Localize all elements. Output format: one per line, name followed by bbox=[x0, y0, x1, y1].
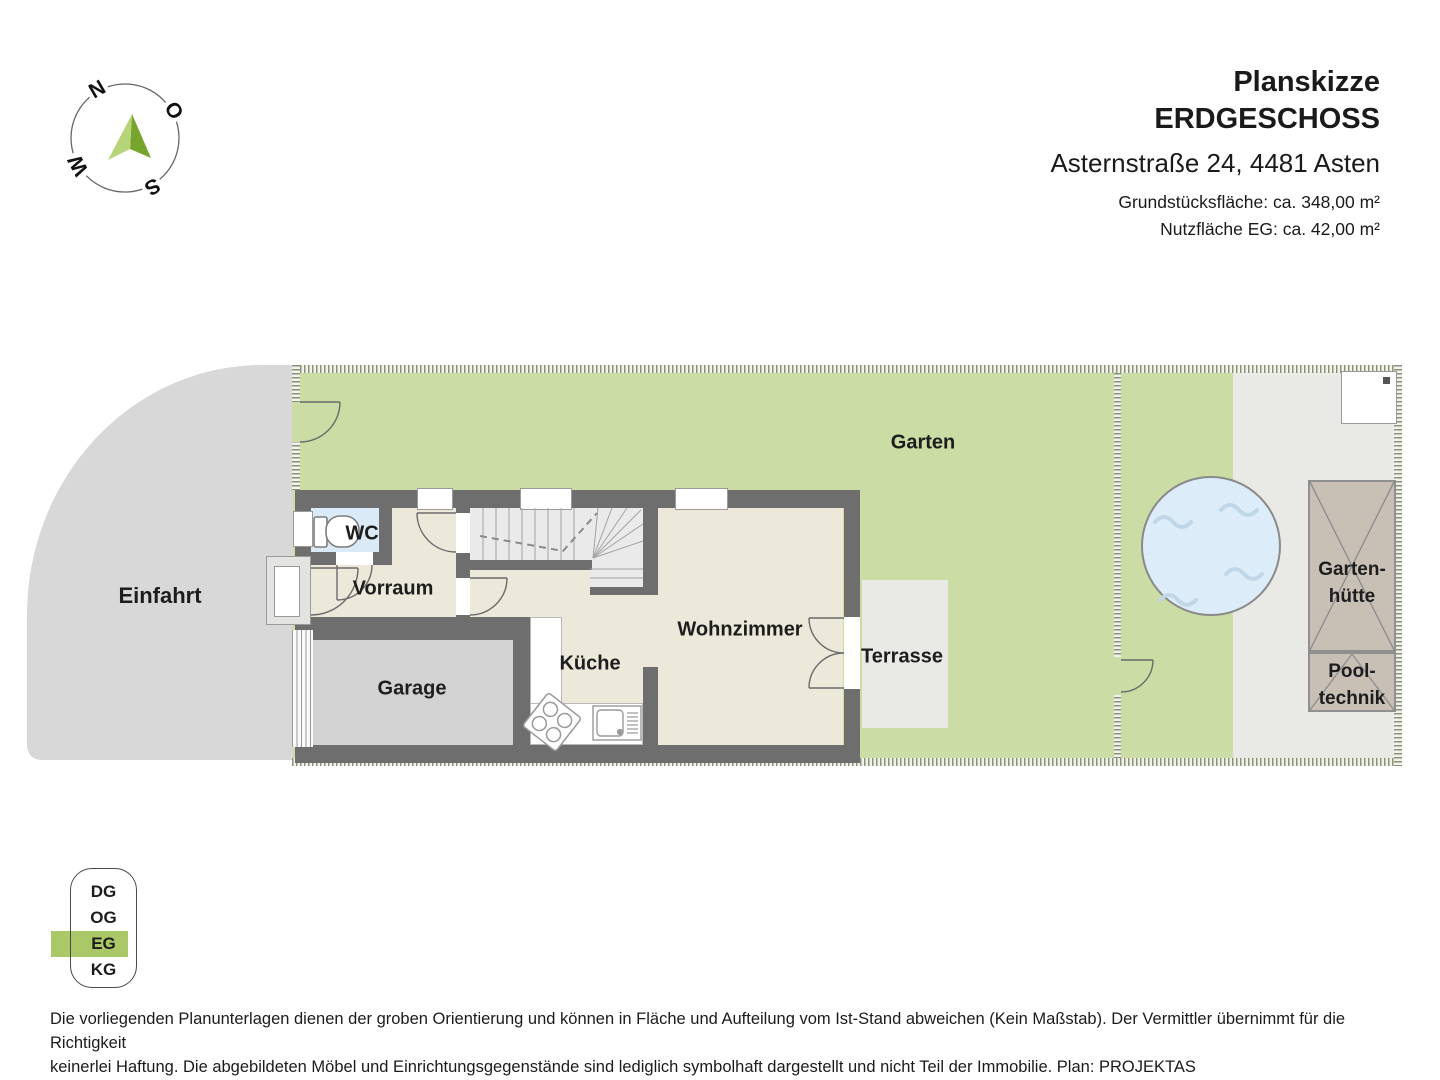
floor-item-og[interactable]: OG bbox=[70, 905, 137, 931]
floor-item-eg[interactable]: EG bbox=[70, 931, 137, 957]
wall bbox=[513, 640, 530, 745]
kitchen-counter-bottom bbox=[530, 703, 643, 745]
wall bbox=[295, 490, 860, 508]
compass: N O S W bbox=[58, 70, 198, 210]
wall bbox=[295, 745, 860, 763]
address: Asternstraße 24, 4481 Asten bbox=[1050, 147, 1380, 179]
floorplan-page: Planskizze ERDGESCHOSS Asternstraße 24, … bbox=[0, 0, 1440, 1080]
wall bbox=[590, 587, 658, 595]
compass-arrow-light bbox=[108, 114, 132, 160]
label-vorraum: Vorraum bbox=[353, 578, 434, 601]
label-wohnzimmer: Wohnzimmer bbox=[677, 619, 802, 642]
label-gartenhuette: Garten- hütte bbox=[1318, 556, 1386, 610]
floor-title: ERDGESCHOSS bbox=[1050, 101, 1380, 138]
wc-window bbox=[293, 511, 313, 547]
garden-gate-gap bbox=[292, 402, 301, 442]
label-terrasse: Terrasse bbox=[861, 646, 943, 669]
wall bbox=[470, 560, 592, 570]
driveway-area bbox=[27, 365, 293, 760]
disclaimer-line1: Die vorliegenden Planunterlagen dienen d… bbox=[50, 1007, 1400, 1055]
compass-circle bbox=[58, 70, 198, 210]
stairs-upper bbox=[470, 508, 643, 560]
pool bbox=[1141, 476, 1281, 616]
disclaimer-line2: keinerlei Haftung. Die abgebildeten Möbe… bbox=[50, 1055, 1400, 1079]
wall bbox=[643, 508, 658, 595]
floor-item-kg[interactable]: KG bbox=[70, 957, 137, 983]
inner-gate-gap bbox=[1114, 657, 1121, 695]
stairs-lower bbox=[590, 560, 643, 587]
label-pooltechnik-line1: Pool- bbox=[1319, 658, 1386, 685]
label-garten: Garten bbox=[891, 432, 955, 455]
label-einfahrt: Einfahrt bbox=[118, 583, 201, 609]
label-pooltechnik-line2: technik bbox=[1319, 685, 1386, 712]
usable-area: Nutzfläche EG: ca. 42,00 m² bbox=[1050, 216, 1380, 243]
plot-area: Grundstücksfläche: ca. 348,00 m² bbox=[1050, 189, 1380, 216]
header: Planskizze ERDGESCHOSS Asternstraße 24, … bbox=[1050, 64, 1380, 243]
wall bbox=[311, 617, 530, 640]
terrasse-door-gap bbox=[844, 617, 860, 689]
wc-door-gap bbox=[336, 552, 373, 565]
floor-item-dg[interactable]: DG bbox=[70, 879, 137, 905]
window bbox=[675, 488, 728, 510]
entry-step bbox=[274, 566, 300, 617]
window bbox=[417, 488, 453, 510]
label-gartenhuette-line2: hütte bbox=[1318, 583, 1386, 610]
label-pooltechnik: Pool- technik bbox=[1319, 658, 1386, 712]
garage-door bbox=[292, 630, 313, 747]
fence-top bbox=[292, 365, 1402, 373]
disclaimer: Die vorliegenden Planunterlagen dienen d… bbox=[50, 1007, 1400, 1079]
fence-inner bbox=[1114, 373, 1121, 758]
compass-arrow-dark bbox=[130, 114, 151, 158]
vorraum-door-gap bbox=[456, 513, 470, 553]
label-wc: WC bbox=[345, 523, 378, 546]
shed-dot-icon bbox=[1383, 377, 1390, 384]
wall bbox=[643, 667, 658, 745]
label-garage: Garage bbox=[378, 678, 447, 701]
hall-door-gap bbox=[456, 578, 470, 615]
page-title: Planskizze bbox=[1050, 64, 1380, 101]
label-kueche: Küche bbox=[559, 653, 620, 676]
wall bbox=[379, 508, 392, 552]
window bbox=[520, 488, 572, 510]
label-gartenhuette-line1: Garten- bbox=[1318, 556, 1386, 583]
